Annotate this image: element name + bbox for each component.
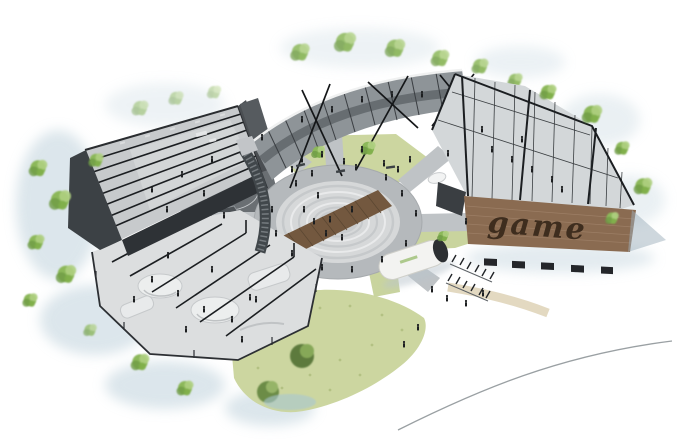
aerial-site-plan-svg: game bbox=[0, 0, 678, 443]
architectural-rendering-image: game bbox=[0, 0, 678, 443]
